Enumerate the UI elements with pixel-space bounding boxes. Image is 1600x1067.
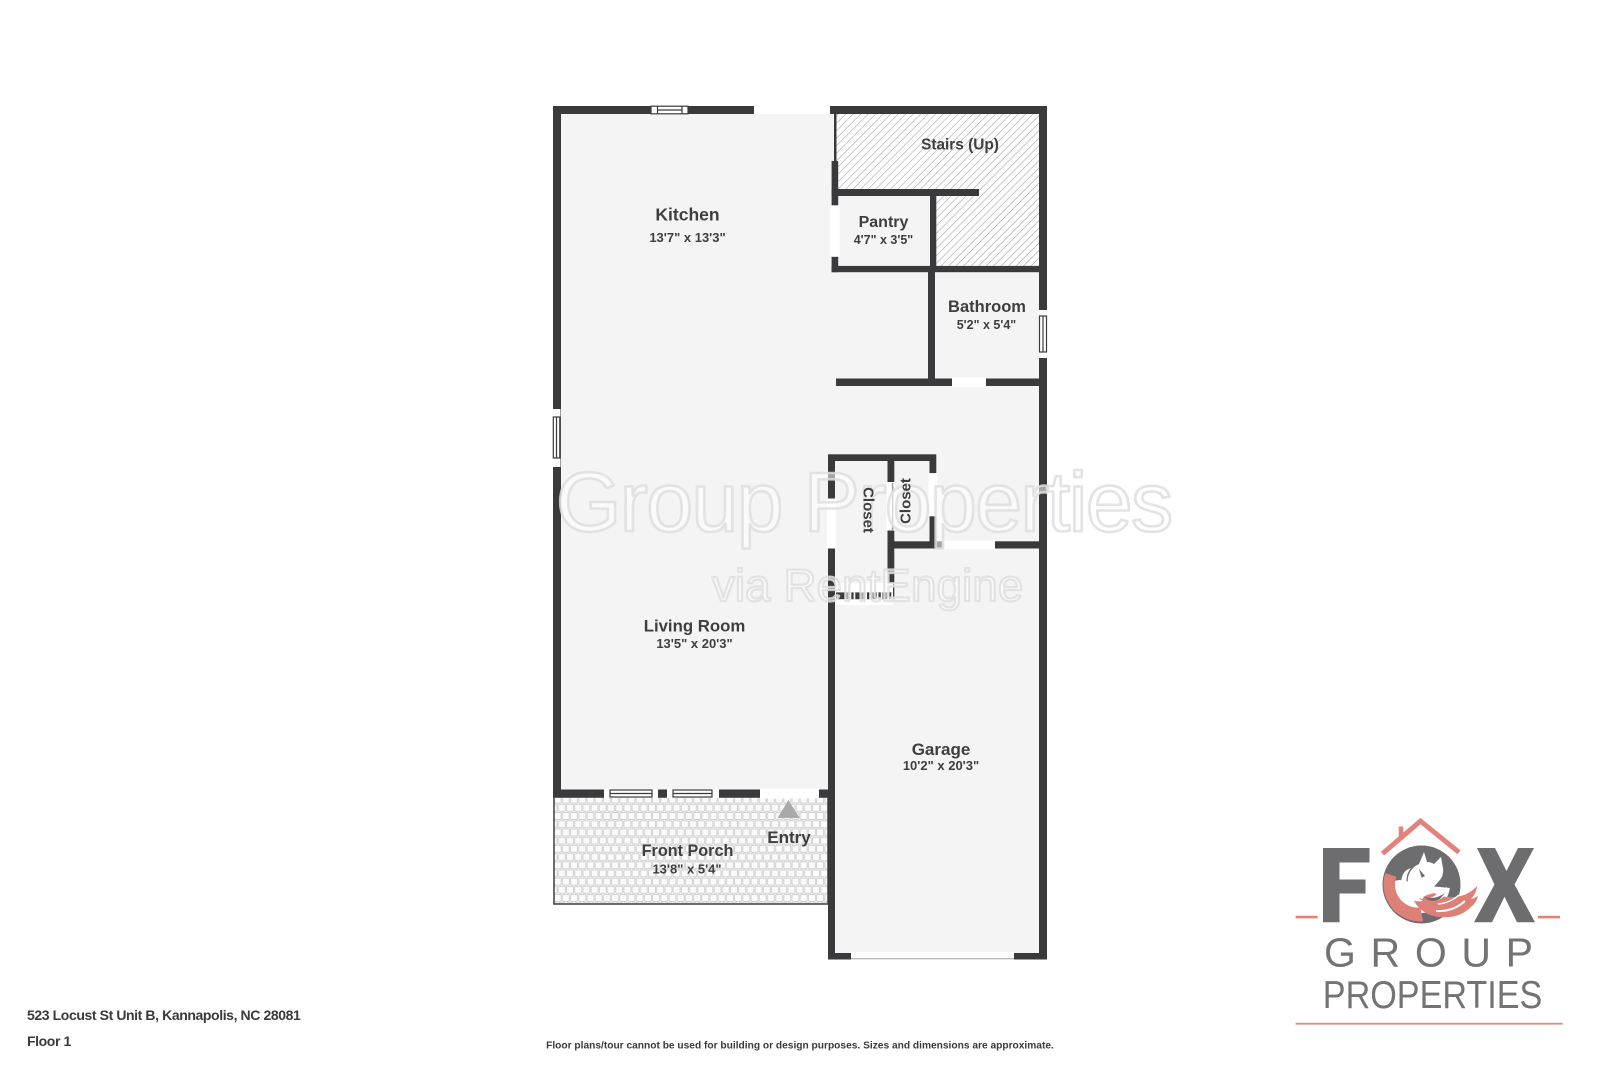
svg-text:Closet: Closet [898,478,915,524]
svg-text:Bathroom: Bathroom [948,298,1026,316]
svg-text:Pantry: Pantry [859,214,909,231]
svg-text:Closet: Closet [860,487,877,533]
svg-text:4'7" x 3'5": 4'7" x 3'5" [854,233,914,247]
svg-text:Entry: Entry [767,828,811,847]
svg-text:Front Porch: Front Porch [642,842,734,860]
svg-text:PROPERTIES: PROPERTIES [1323,974,1543,1017]
svg-text:Living Room: Living Room [644,617,746,636]
svg-text:13'7" x 13'3": 13'7" x 13'3" [649,230,725,245]
svg-text:Garage: Garage [912,740,971,759]
svg-text:13'8" x 5'4": 13'8" x 5'4" [652,862,721,877]
svg-text:13'5" x 20'3": 13'5" x 20'3" [656,636,732,651]
svg-text:via RentEngine: via RentEngine [712,560,1023,611]
svg-text:Floor plans/tour cannot be use: Floor plans/tour cannot be used for buil… [546,1041,1054,1052]
svg-text:Stairs (Up): Stairs (Up) [921,137,999,154]
svg-text:10'2" x 20'3": 10'2" x 20'3" [903,758,979,773]
svg-text:5'2" x 5'4": 5'2" x 5'4" [957,318,1017,332]
svg-text:Kitchen: Kitchen [655,205,719,225]
svg-text:Floor 1: Floor 1 [27,1033,71,1049]
svg-text:523 Locust St Unit B, Kannapol: 523 Locust St Unit B, Kannapolis, NC 280… [27,1007,301,1023]
